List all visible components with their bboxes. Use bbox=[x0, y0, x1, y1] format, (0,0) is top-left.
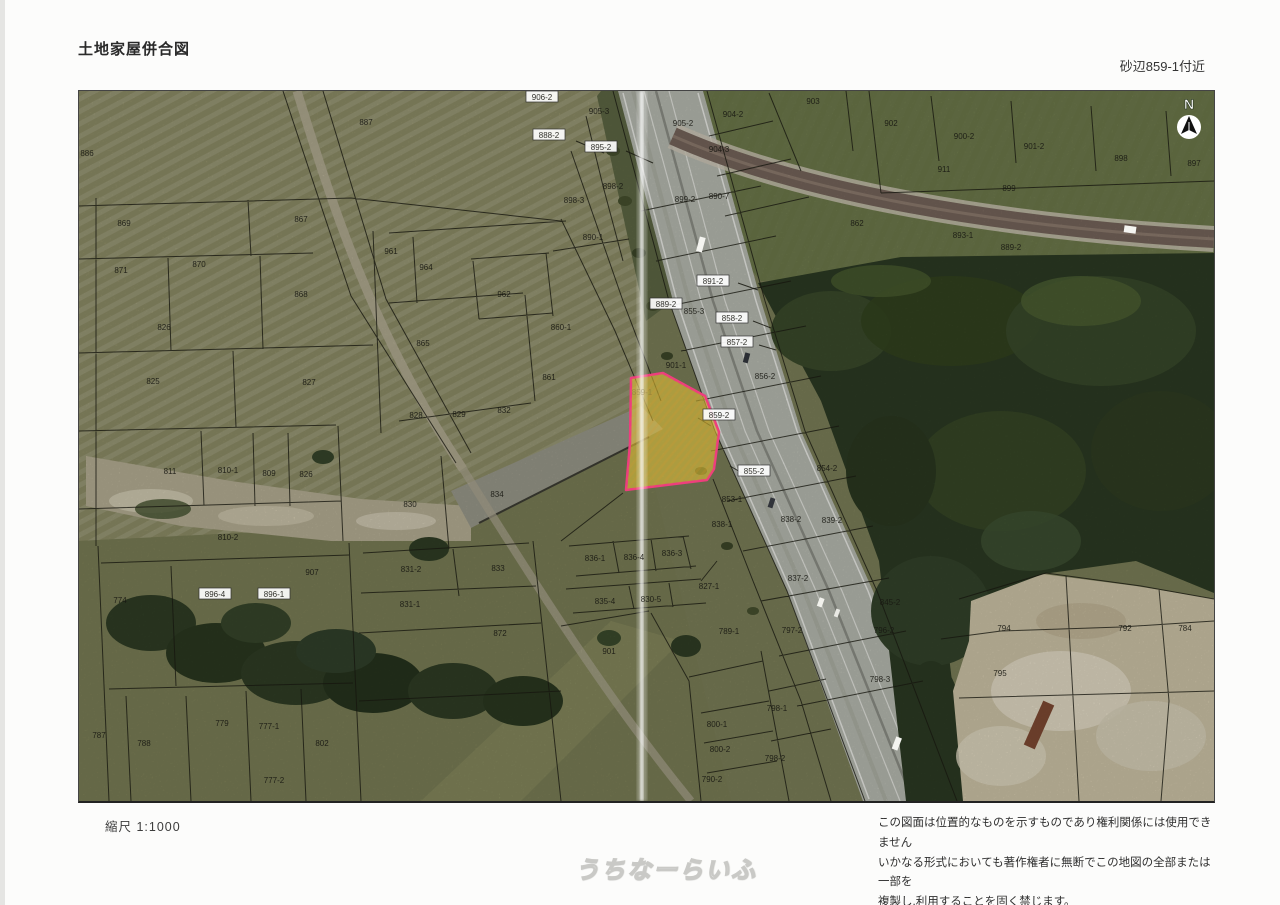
parcel-label: 794 bbox=[997, 624, 1011, 633]
parcel-label: 826 bbox=[157, 323, 171, 332]
parcel-label: 897 bbox=[1187, 159, 1201, 168]
parcel-label: 838-1 bbox=[712, 520, 733, 529]
parcel-label: 835-4 bbox=[595, 597, 616, 606]
parcel-label: 905-2 bbox=[673, 119, 694, 128]
parcel-label: 784 bbox=[1178, 624, 1192, 633]
parcel-label: 961 bbox=[384, 247, 398, 256]
parcel-label: 865 bbox=[416, 339, 430, 348]
parcel-label: 855-2 bbox=[744, 467, 765, 476]
parcel-label: 809 bbox=[262, 469, 276, 478]
parcel-label: 836-1 bbox=[585, 554, 606, 563]
parcel-label: 798-2 bbox=[765, 754, 786, 763]
parcel-label: 871 bbox=[114, 266, 128, 275]
parcel-label: 901-2 bbox=[1024, 142, 1045, 151]
parcel-label: 829 bbox=[452, 410, 466, 419]
cadastral-map-document: 土地家屋併合図 砂辺859-1付近 bbox=[0, 0, 1280, 905]
parcel-label: 810-1 bbox=[218, 466, 239, 475]
parcel-label: 900-2 bbox=[954, 132, 975, 141]
parcel-label: 905-3 bbox=[589, 107, 610, 116]
parcel-label: 962 bbox=[497, 290, 511, 299]
location-label: 砂辺859-1付近 bbox=[1120, 56, 1205, 75]
parcel-label: 893-1 bbox=[953, 231, 974, 240]
parcel-label: 796-2 bbox=[874, 626, 895, 635]
parcel-label: 830-5 bbox=[641, 595, 662, 604]
parcel-label: 890-1 bbox=[583, 233, 604, 242]
parcel-label: 833 bbox=[491, 564, 505, 573]
parcel-label: 790-2 bbox=[702, 775, 723, 784]
watermark: うちなーらいふ bbox=[575, 850, 757, 885]
parcel-label: 834 bbox=[490, 490, 504, 499]
parcel-label: 832 bbox=[497, 406, 511, 415]
parcel-label: 839-2 bbox=[822, 516, 843, 525]
parcel-label: 787 bbox=[92, 731, 106, 740]
parcel-label: 891-2 bbox=[703, 277, 724, 286]
parcel-label: 869 bbox=[117, 219, 131, 228]
parcel-label: 896-4 bbox=[205, 590, 226, 599]
parcel-label: 862 bbox=[850, 219, 864, 228]
parcel-label: 837-2 bbox=[788, 574, 809, 583]
parcel-label: 857-2 bbox=[727, 338, 748, 347]
parcel-label: 870 bbox=[192, 260, 206, 269]
parcel-label: 906-2 bbox=[532, 93, 553, 102]
parcel-label: 777-2 bbox=[264, 776, 285, 785]
parcel-label: 872 bbox=[493, 629, 507, 638]
parcel-label: 827-1 bbox=[699, 582, 720, 591]
parcel-label: 902 bbox=[884, 119, 898, 128]
parcel-label: 856-2 bbox=[755, 372, 776, 381]
parcel-label: 788 bbox=[137, 739, 151, 748]
parcel-label: 898-2 bbox=[603, 182, 624, 191]
parcel-label: 964 bbox=[419, 263, 433, 272]
page-title: 土地家屋併合図 bbox=[78, 38, 190, 59]
scale-label: 縮尺 1:1000 bbox=[105, 816, 181, 835]
aerial-map[interactable]: 906-2905-3905-2904-2903902900-2901-28988… bbox=[78, 90, 1215, 803]
aerial-map-canvas: 906-2905-3905-2904-2903902900-2901-28988… bbox=[79, 91, 1214, 801]
parcel-label: 827 bbox=[302, 378, 316, 387]
disclaimer: この図面は位置的なものを示すものであり権利関係には使用できません いかなる形式に… bbox=[878, 814, 1218, 905]
parcel-label: 800-1 bbox=[707, 720, 728, 729]
parcel-label: 838-2 bbox=[781, 515, 802, 524]
parcel-label: 867 bbox=[294, 215, 308, 224]
parcel-label: 888-2 bbox=[539, 131, 560, 140]
parcel-label: 828 bbox=[409, 411, 423, 420]
parcel-label: 779 bbox=[215, 719, 229, 728]
parcel-label: 826 bbox=[299, 470, 313, 479]
north-label: N bbox=[1184, 96, 1194, 112]
parcel-label: 898-3 bbox=[564, 196, 585, 205]
parcel-label: 802 bbox=[315, 739, 329, 748]
disclaimer-line: 複製し,利用することを固く禁じます。 bbox=[878, 893, 1218, 905]
parcel-label: 886 bbox=[80, 149, 94, 158]
parcel-label: 797-2 bbox=[782, 626, 803, 635]
disclaimer-line: いかなる形式においても著作権者に無断でこの地図の全部または一部を bbox=[878, 854, 1218, 894]
parcel-label: 858-2 bbox=[722, 314, 743, 323]
parcel-label: 792 bbox=[1118, 624, 1132, 633]
parcel-label: 868 bbox=[294, 290, 308, 299]
parcel-label: 854-2 bbox=[817, 464, 838, 473]
parcel-label: 831-1 bbox=[400, 600, 421, 609]
parcel-label: 903 bbox=[806, 97, 820, 106]
parcel-label: 845-2 bbox=[880, 598, 901, 607]
parcel-label: 836-4 bbox=[624, 553, 645, 562]
parcel-label: 830 bbox=[403, 500, 417, 509]
parcel-label: 889-2 bbox=[656, 300, 677, 309]
scan-edge-shadow bbox=[0, 0, 5, 905]
parcel-label: 800-2 bbox=[710, 745, 731, 754]
parcel-label: 901 bbox=[602, 647, 616, 656]
parcel-label: 853-1 bbox=[722, 495, 743, 504]
parcel-label: 859-1 bbox=[632, 388, 653, 397]
parcel-label: 904-2 bbox=[723, 110, 744, 119]
parcel-label: 899 bbox=[1002, 184, 1016, 193]
parcel-label: 890-7 bbox=[709, 192, 730, 201]
parcel-label: 836-3 bbox=[662, 549, 683, 558]
fold-crease bbox=[637, 91, 647, 801]
parcel-label: 798-3 bbox=[870, 675, 891, 684]
parcel-label: 855-3 bbox=[684, 307, 705, 316]
parcel-label: 798-1 bbox=[767, 704, 788, 713]
parcel-label: 907 bbox=[305, 568, 319, 577]
parcel-label: 774 bbox=[113, 596, 127, 605]
parcel-label: 901-1 bbox=[666, 361, 687, 370]
parcel-label: 825 bbox=[146, 377, 160, 386]
disclaimer-line: この図面は位置的なものを示すものであり権利関係には使用できません bbox=[878, 814, 1218, 854]
parcel-label: 899-2 bbox=[675, 195, 696, 204]
parcel-label: 811 bbox=[164, 467, 177, 476]
parcel-label: 860-1 bbox=[551, 323, 572, 332]
parcel-label: 896-1 bbox=[264, 590, 285, 599]
parcel-label: 831-2 bbox=[401, 565, 422, 574]
parcel-label: 777-1 bbox=[259, 722, 280, 731]
parcel-label: 861 bbox=[542, 373, 556, 382]
parcel-label: 895-2 bbox=[591, 143, 612, 152]
parcel-label: 789-1 bbox=[719, 627, 740, 636]
parcel-label: 795 bbox=[993, 669, 1007, 678]
parcel-label: 889-2 bbox=[1001, 243, 1022, 252]
parcel-label: 898 bbox=[1114, 154, 1128, 163]
parcel-label: 859-2 bbox=[709, 411, 730, 420]
parcel-label: 904-3 bbox=[709, 145, 730, 154]
parcel-label: 911 bbox=[938, 165, 951, 174]
parcel-label: 887 bbox=[359, 118, 373, 127]
parcel-label: 810-2 bbox=[218, 533, 239, 542]
